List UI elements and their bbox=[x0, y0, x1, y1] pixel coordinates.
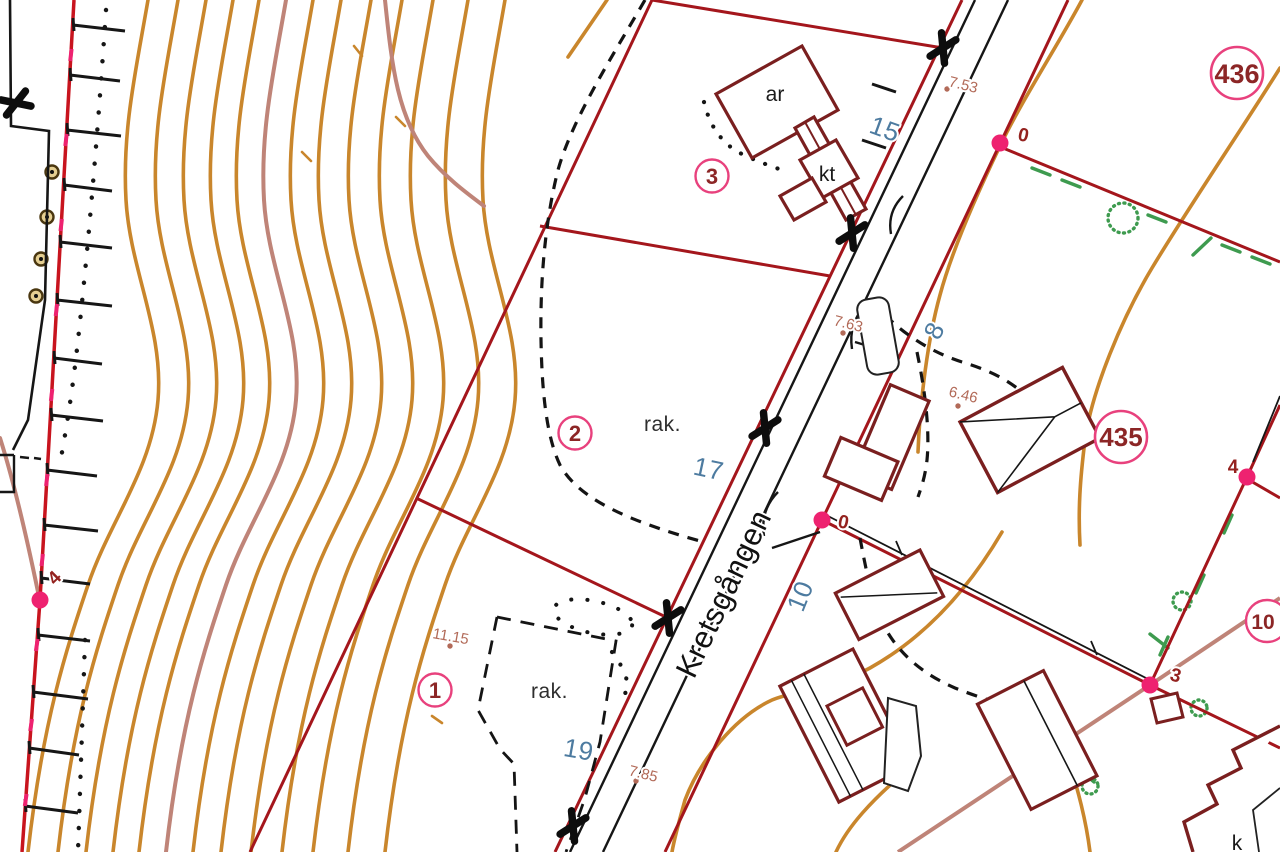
parcel-number: 1 bbox=[429, 678, 441, 703]
dotted-boundary bbox=[78, 640, 85, 852]
block-number: 436 bbox=[1214, 59, 1259, 89]
building-use-label: k bbox=[1232, 832, 1243, 852]
elevation-label: 6.46 bbox=[947, 383, 979, 407]
building-use-label: kt bbox=[819, 163, 836, 186]
black-parcel-line bbox=[10, 0, 49, 450]
boundary-west bbox=[250, 0, 652, 852]
survey-point bbox=[32, 592, 49, 609]
boundary-stub-east bbox=[1249, 480, 1280, 498]
ground-type-label: rak. bbox=[644, 413, 681, 436]
elevation-label: 7.85 bbox=[627, 762, 659, 786]
building-black-shed bbox=[884, 698, 921, 791]
address-number: 10 bbox=[780, 577, 819, 616]
point-label: 4 bbox=[1228, 457, 1239, 478]
survey-point bbox=[1239, 469, 1256, 486]
parcel-number: 2 bbox=[569, 421, 581, 446]
buildings bbox=[716, 46, 1280, 852]
building-use-label: ar bbox=[766, 83, 785, 106]
shrub-dotted-ring bbox=[551, 593, 636, 641]
building-small-square bbox=[1151, 693, 1183, 723]
boundary-parcel3-2 bbox=[540, 226, 830, 276]
elevation-label: 7.53 bbox=[947, 73, 979, 97]
ground-type-label: rak. bbox=[531, 680, 568, 703]
boundary-north bbox=[652, 0, 943, 48]
fence-ticks bbox=[25, 18, 125, 813]
point-label: 0 bbox=[1016, 124, 1031, 147]
boundary-northeast bbox=[1003, 148, 1280, 262]
building-black-annex bbox=[856, 296, 901, 376]
point-label: 3 bbox=[1168, 665, 1184, 688]
tree-icon bbox=[1108, 203, 1138, 233]
point-label: 0 bbox=[836, 511, 851, 534]
parcel1-dashed-boundary bbox=[478, 617, 616, 852]
hedge-cross-tick bbox=[1193, 238, 1211, 255]
cadastral-map: 0 0 4 3 4 7.53 7.63 6.46 7.85 11.15 436 … bbox=[0, 0, 1280, 852]
rosy-boundary-line bbox=[898, 598, 1280, 852]
hedge-dashes bbox=[1032, 168, 1270, 264]
elevation-label: 11.15 bbox=[431, 625, 470, 648]
x-marker-icon bbox=[1, 91, 31, 115]
map-canvas: 0 0 4 3 4 7.53 7.63 6.46 7.85 11.15 436 … bbox=[0, 0, 1280, 852]
parcel-number: 3 bbox=[706, 164, 718, 189]
x-marker-icon bbox=[839, 218, 865, 248]
building-435-house bbox=[960, 367, 1100, 492]
survey-point bbox=[814, 512, 831, 529]
address-number: 19 bbox=[561, 732, 596, 767]
survey-point bbox=[1142, 677, 1159, 694]
dotted-line bbox=[612, 652, 628, 698]
point-label: 4 bbox=[44, 567, 67, 590]
boundary-post-icons bbox=[30, 166, 59, 303]
block-number: 435 bbox=[1099, 422, 1142, 452]
address-number: 17 bbox=[691, 451, 727, 487]
contour-lines-left bbox=[28, 0, 607, 852]
survey-point bbox=[992, 135, 1009, 152]
block-number: 10 bbox=[1251, 611, 1274, 634]
building-ar-kt bbox=[716, 46, 866, 220]
driveway-flare bbox=[890, 196, 903, 234]
